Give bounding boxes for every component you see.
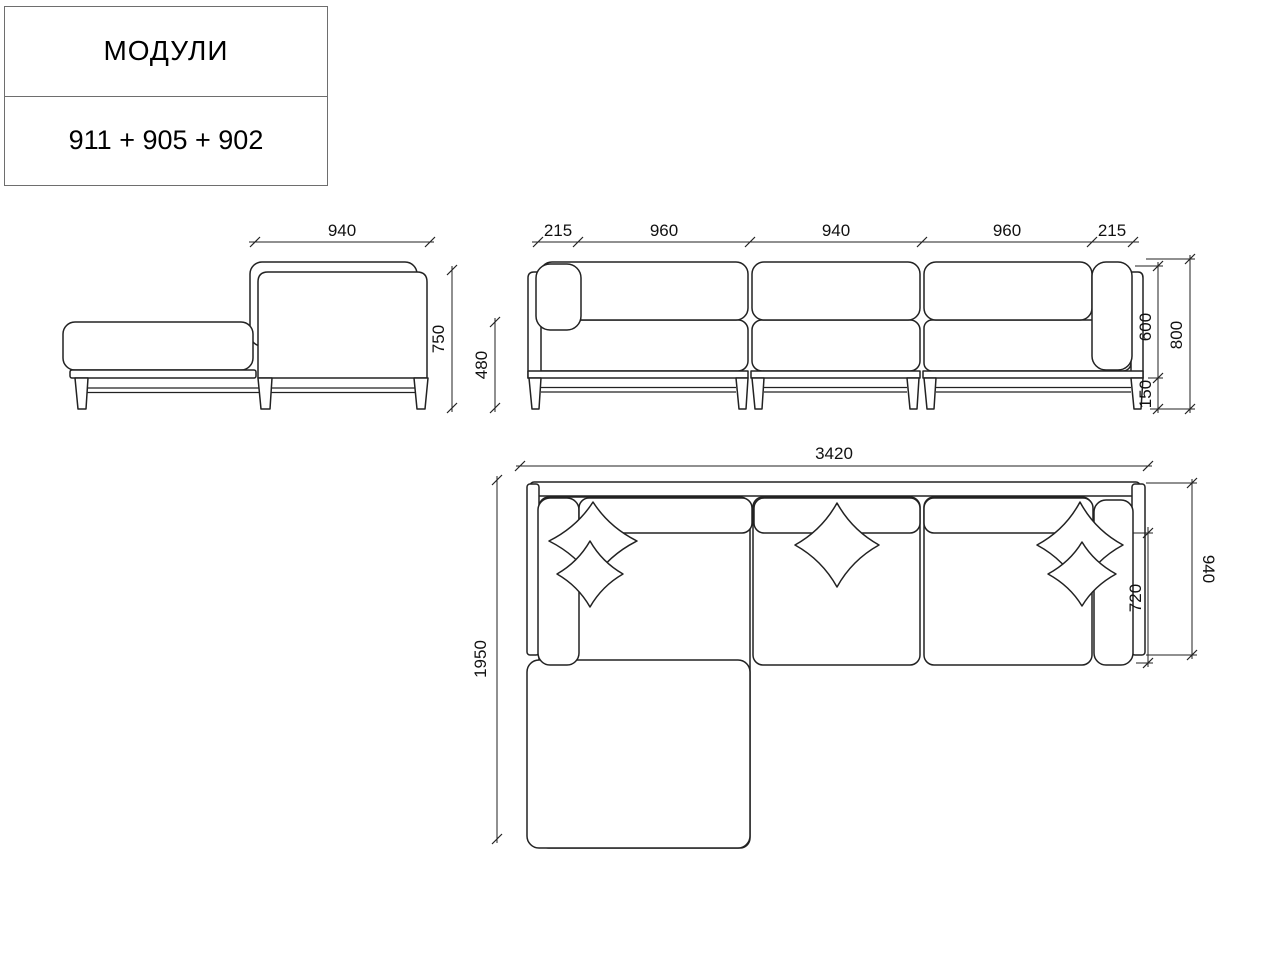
side-view: [63, 262, 428, 409]
dim-label-seat-depth: 720: [1126, 584, 1145, 612]
front-leg: [752, 378, 764, 409]
top-left-rail: [527, 484, 539, 655]
front-base-rail: [751, 371, 920, 378]
dim-label-side-depth: 940: [328, 221, 356, 240]
front-view: [528, 262, 1143, 409]
side-seat-cushion: [63, 322, 253, 370]
dim-label-total-depth: 1950: [471, 640, 490, 678]
dim-label-arm-right: 215: [1098, 221, 1126, 240]
front-right-arm-cushion: [1092, 262, 1132, 370]
front-base-rail: [528, 371, 748, 378]
dim-label-arm-left: 215: [544, 221, 572, 240]
front-back-cushion: [752, 262, 920, 320]
front-leg: [907, 378, 919, 409]
dim-label-seat-mid: 940: [822, 221, 850, 240]
side-arm-panel: [258, 272, 427, 378]
front-leg: [529, 378, 541, 409]
front-back-cushion: [924, 262, 1092, 320]
front-leg: [924, 378, 936, 409]
front-base-rail: [923, 371, 1143, 378]
top-chaise-seat: [527, 660, 750, 848]
sofa-drawing: 940 750 480 215 960 940 960 215 600 150 …: [0, 0, 1280, 960]
top-view: [527, 482, 1145, 848]
top-back-rail: [530, 482, 1140, 496]
dim-label-total-length: 3420: [815, 444, 853, 463]
front-leg: [736, 378, 748, 409]
dim-label-back-height: 600: [1136, 313, 1155, 341]
top-right-rail: [1132, 484, 1145, 655]
drawing-sheet: МОДУЛИ 911 + 905 + 902: [0, 0, 1280, 960]
side-leg: [75, 378, 88, 409]
dim-label-seat-left: 960: [650, 221, 678, 240]
dim-label-total-height: 800: [1167, 321, 1186, 349]
front-left-arm-cushion: [536, 264, 581, 330]
dim-label-side-height: 750: [429, 325, 448, 353]
dim-label-seat-right: 960: [993, 221, 1021, 240]
dim-label-module-depth: 940: [1199, 555, 1218, 583]
front-seat-cushion: [752, 320, 920, 371]
dim-label-seat-height: 480: [472, 351, 491, 379]
side-base-rail: [70, 370, 256, 378]
side-leg: [414, 378, 428, 409]
side-leg: [258, 378, 272, 409]
dim-label-leg-height: 150: [1136, 380, 1155, 408]
